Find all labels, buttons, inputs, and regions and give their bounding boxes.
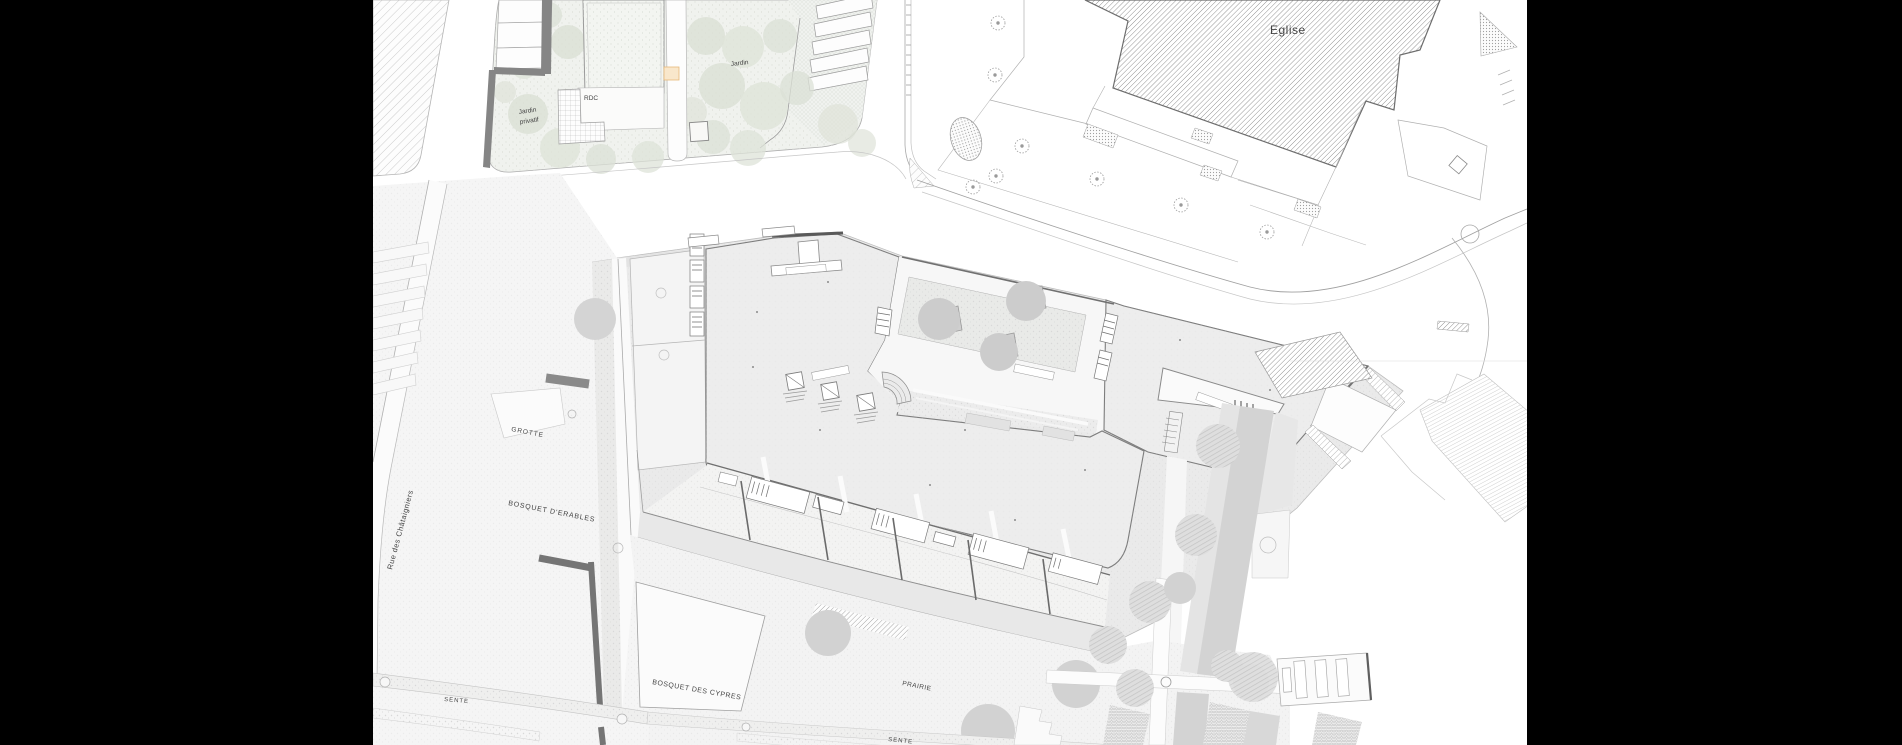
svg-text:RDC: RDC — [584, 95, 598, 102]
svg-text:Eglise: Eglise — [1270, 23, 1306, 37]
